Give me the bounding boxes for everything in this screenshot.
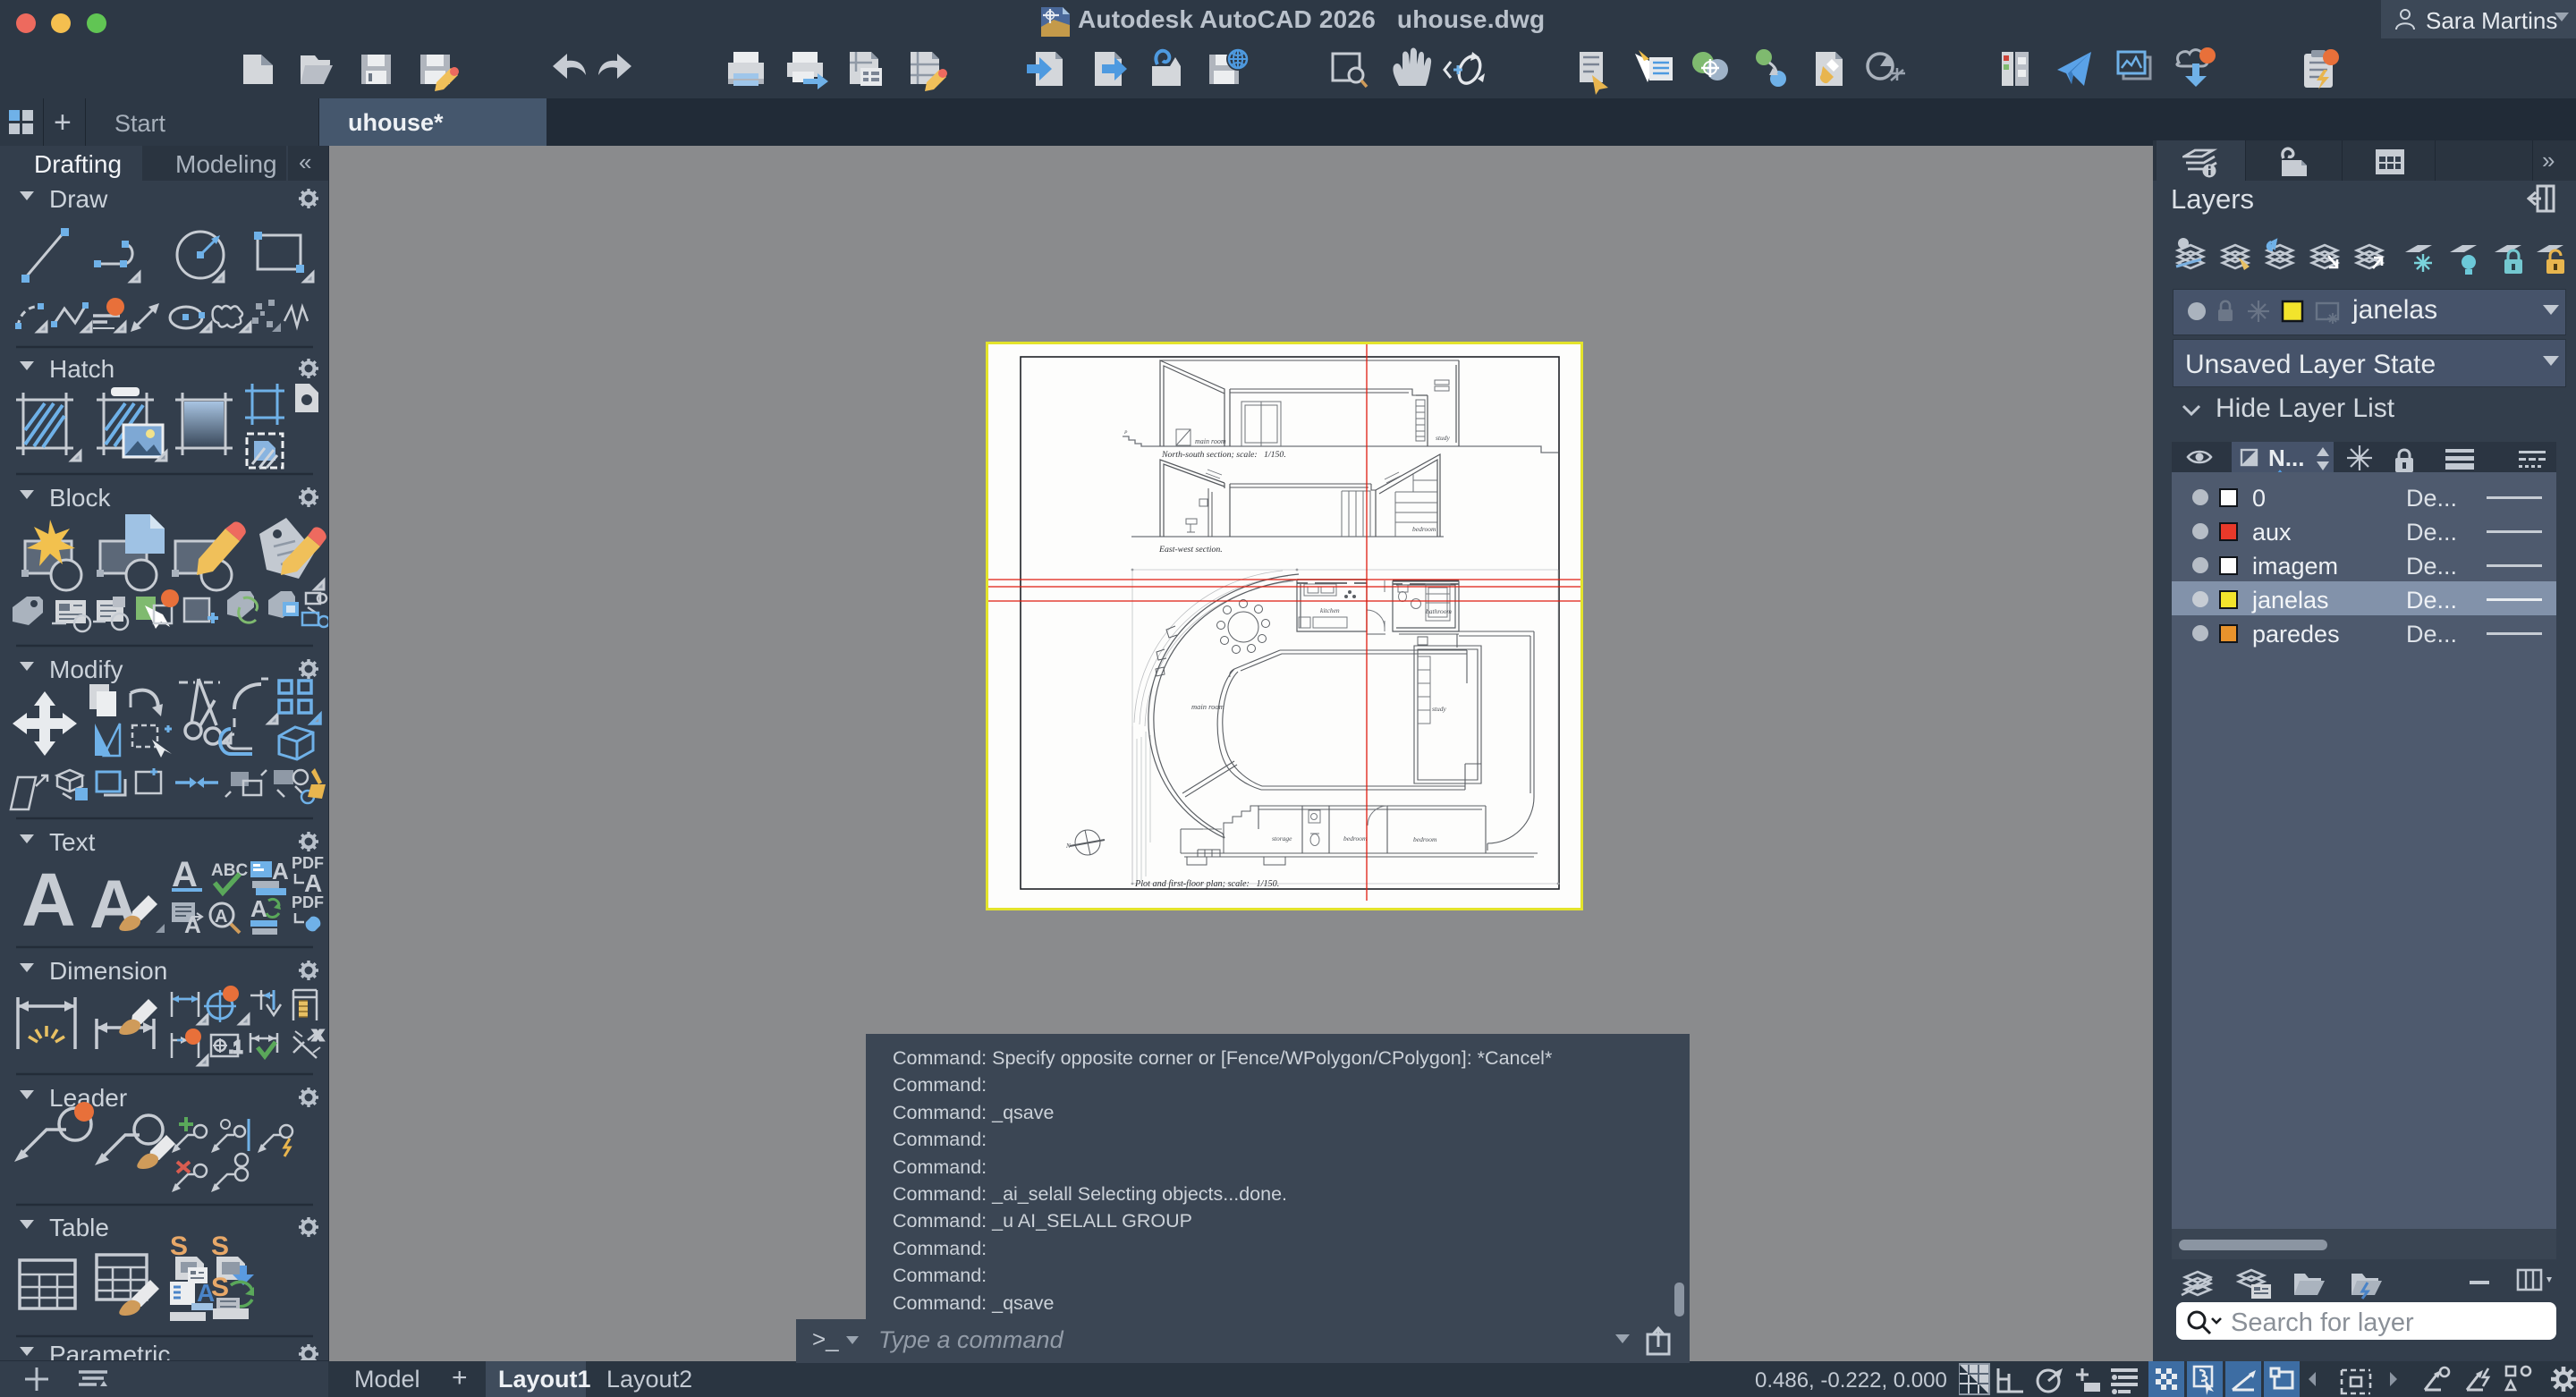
svg-text:East-west section.: East-west section. <box>1158 545 1223 555</box>
svg-text:bedroom: bedroom <box>1343 834 1368 842</box>
svg-text:N...: N... <box>2268 444 2304 471</box>
svg-text:janelas: janelas <box>2251 587 2329 614</box>
svg-text:main room: main room <box>1191 702 1224 711</box>
svg-text:De...: De... <box>2406 621 2457 648</box>
svg-text:kitchen: kitchen <box>1320 606 1340 614</box>
svg-text:N: N <box>1065 842 1071 850</box>
svg-text:PDF: PDF <box>292 893 324 911</box>
svg-text:aux: aux <box>2252 519 2292 546</box>
svg-text:A: A <box>215 907 227 927</box>
svg-text:De...: De... <box>2406 519 2457 546</box>
svg-text:imagem: imagem <box>2252 553 2338 580</box>
svg-text:study: study <box>1436 434 1451 442</box>
svg-text:A: A <box>250 895 267 922</box>
svg-text:A: A <box>272 858 289 885</box>
svg-text:study: study <box>1432 705 1447 713</box>
svg-text:A: A <box>184 911 201 938</box>
svg-text:A: A <box>21 858 76 942</box>
svg-text:storage: storage <box>1272 834 1292 842</box>
svg-text:ABC: ABC <box>211 861 248 880</box>
svg-text:x: x <box>313 1025 323 1045</box>
svg-text:North-south section; scale:: North-south section; scale: 1/150. <box>1161 450 1286 460</box>
svg-text:A: A <box>89 867 139 943</box>
svg-text:Plot and first-floor plan; sca: Plot and first-floor plan; scale: 1/150. <box>1134 879 1279 889</box>
svg-text:.1: .1 <box>229 1038 242 1056</box>
svg-text:0: 0 <box>2252 485 2266 512</box>
svg-text:De...: De... <box>2406 485 2457 512</box>
svg-text:bathroom: bathroom <box>1426 607 1452 615</box>
svg-text:main room: main room <box>1195 437 1226 445</box>
svg-text:bedroom: bedroom <box>1413 835 1437 843</box>
svg-text:P: P <box>1123 430 1128 436</box>
svg-text:De...: De... <box>2406 587 2457 614</box>
svg-text:bedroom: bedroom <box>1412 525 1436 533</box>
svg-text:De...: De... <box>2406 553 2457 580</box>
svg-text:paredes: paredes <box>2252 621 2340 648</box>
